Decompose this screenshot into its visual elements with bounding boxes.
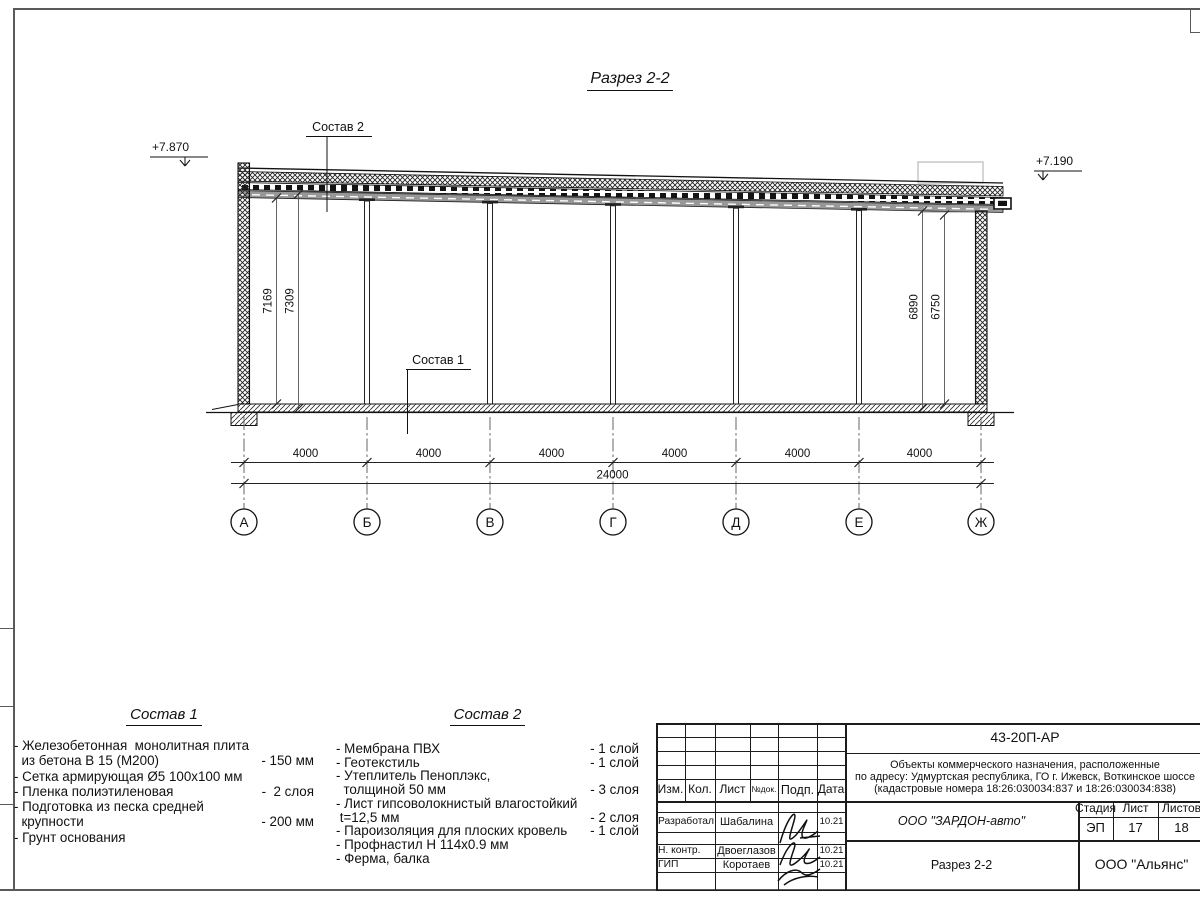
right-wall	[976, 211, 988, 404]
material-item: - Геотекстиль- 1 слой	[336, 756, 639, 770]
composition2-title: Состав 2	[336, 706, 639, 726]
dim-bay-4: 4000	[662, 448, 688, 460]
doc-number: 43-20П-АР	[845, 723, 1200, 753]
composition1-block: Состав 1 - Железобетонная монолитная пли…	[14, 706, 314, 845]
frame-tick	[0, 628, 13, 629]
elevation-mark-left: +7.870	[150, 140, 208, 166]
axis-bubbles: А Б В Г Д Е Ж	[231, 509, 994, 535]
role-ncontrol: Н. контр.	[658, 844, 714, 858]
date-developer: 10.21	[818, 812, 845, 832]
name-ncontrol: Двоеглазов	[716, 844, 777, 858]
role-developer: Разработал	[658, 812, 714, 832]
col-header-sign: Подп.	[778, 779, 817, 801]
sheets-label: Листов	[1158, 801, 1200, 817]
material-item: - Ферма, балка	[336, 852, 639, 866]
roof-assembly	[238, 168, 1011, 213]
dim-bay-2: 4000	[416, 448, 442, 460]
composition1-title: Состав 1	[14, 706, 314, 726]
dim-height-6890: 6890	[909, 294, 921, 320]
dim-height-7309: 7309	[285, 288, 297, 314]
material-item: - Пленка полиэтиленовая- 2 слоя	[14, 784, 314, 799]
material-item: - Лист гипсоволокнистый влагостойкий	[336, 797, 639, 811]
material-item: - Подготовка из песка средней	[14, 799, 314, 814]
name-gip: Коротаев	[716, 858, 777, 872]
axis-bubble-a: А	[239, 515, 248, 530]
composition2-callout-label: Состав 2	[312, 120, 364, 134]
col-header-izm: Изм.	[656, 779, 685, 801]
material-item: - Профнастил Н 114х0.9 мм	[336, 838, 639, 852]
stage-label: Стадия	[1078, 801, 1113, 817]
background-parapet-outline	[918, 162, 983, 183]
material-item: - Сетка армирующая Ø5 100х100 мм	[14, 769, 314, 784]
material-item: толщиной 50 мм- 3 слоя	[336, 783, 639, 797]
stage-value: ЭП	[1078, 817, 1113, 840]
dim-total: 24000	[597, 470, 629, 482]
sheet-name: Разрез 2-2	[845, 840, 1078, 890]
dim-bay-5: 4000	[785, 448, 811, 460]
material-item: - Мембрана ПВХ- 1 слой	[336, 742, 639, 756]
dim-height-7169: 7169	[263, 288, 275, 314]
col-header-date: Дата	[817, 779, 845, 801]
signature-icon	[772, 833, 824, 889]
col-header-kol: Кол.	[685, 779, 715, 801]
dim-height-6750: 6750	[931, 294, 943, 320]
col-header-doc: №док.	[750, 779, 778, 801]
title-block: Изм. Кол. Лист №док. Подп. Дата Разработ…	[656, 723, 1200, 891]
elevation-left-value: +7.870	[152, 140, 189, 154]
composition2-block: Состав 2 - Мембрана ПВХ- 1 слой - Геотек…	[336, 706, 639, 865]
total-dimension-line: 24000	[231, 470, 994, 489]
axis-bubble-g: Г	[609, 515, 617, 530]
dim-bay-6: 4000	[907, 448, 933, 460]
axis-bubble-e: Е	[854, 515, 863, 530]
drawing-sheet: Разрез 2-2	[0, 0, 1200, 900]
dim-bay-1: 4000	[293, 448, 319, 460]
project-address: Объекты коммерческого назначения, распол…	[845, 753, 1200, 801]
material-item: t=12,5 мм- 2 слоя	[336, 811, 639, 825]
material-item: - Железобетонная монолитная плита	[14, 738, 314, 753]
sheets-value: 18	[1158, 817, 1200, 840]
left-wall	[238, 163, 250, 404]
dim-bay-3: 4000	[539, 448, 565, 460]
role-gip: ГИП	[658, 858, 714, 872]
name-developer: Шабалина	[716, 812, 777, 832]
axis-bubble-zh: Ж	[975, 515, 988, 530]
project-address-line1: Объекты коммерческого назначения, распол…	[890, 759, 1160, 771]
material-item: - Грунт основания	[14, 830, 314, 845]
frame-tick	[0, 706, 13, 707]
axis-bubble-v: В	[485, 515, 494, 530]
columns	[359, 198, 867, 404]
design-company: ООО "ЗАРДОН-авто"	[845, 801, 1078, 840]
project-address-line2: по адресу: Удмуртская республика, ГО г. …	[855, 771, 1195, 783]
sheet-label: Лист	[1113, 801, 1158, 817]
elevation-mark-right: +7.190	[1034, 154, 1082, 180]
contractor-company: ООО "Альянс"	[1078, 840, 1200, 890]
material-item: крупности- 200 мм	[14, 814, 314, 829]
floor-slab	[206, 404, 1014, 426]
material-item: - Пароизоляция для плоских кровель- 1 сл…	[336, 824, 639, 838]
material-item: - Утеплитель Пеноплэкс,	[336, 769, 639, 783]
composition1-callout: Состав 1	[406, 353, 471, 434]
elevation-right-value: +7.190	[1036, 154, 1073, 168]
composition1-callout-label: Состав 1	[412, 353, 464, 367]
col-header-list: Лист	[715, 779, 750, 801]
axis-bubble-b: Б	[363, 515, 372, 530]
material-item: из бетона В 15 (М200)- 150 мм	[14, 753, 314, 768]
section-drawing: +7.870 +7.190 Состав 2 Состав 1	[0, 0, 1200, 560]
project-address-line3: (кадастровые номера 18:26:030034:837 и 1…	[874, 783, 1176, 795]
frame-tick	[0, 804, 13, 805]
axis-bubble-d: Д	[731, 515, 740, 530]
sheet-value: 17	[1113, 817, 1158, 840]
bay-dimension-line: 4000 4000 4000 4000 4000 4000	[231, 448, 994, 467]
